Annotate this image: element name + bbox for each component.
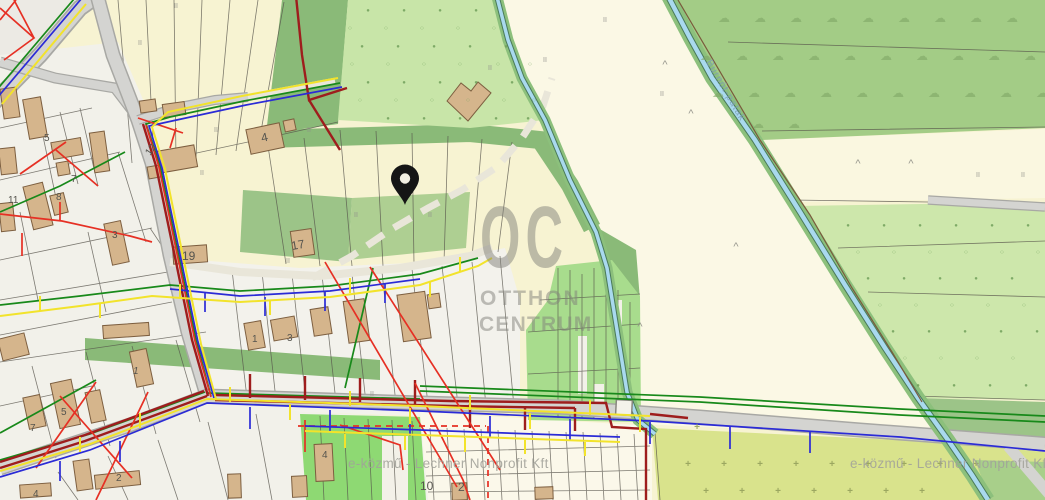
svg-text:●: ● [396, 44, 400, 50]
watermark-line3: CENTRUM [479, 313, 592, 336]
svg-text:+: + [775, 486, 781, 497]
svg-text:○: ○ [914, 302, 918, 309]
svg-text:☁: ☁ [752, 117, 764, 131]
svg-text:☁: ☁ [820, 86, 832, 100]
svg-text:II: II [1021, 172, 1025, 179]
svg-text:8: 8 [56, 192, 62, 203]
svg-text:II: II [138, 40, 142, 47]
svg-text:●: ● [510, 80, 514, 86]
svg-text:^: ^ [855, 158, 861, 170]
svg-text:●: ● [458, 116, 462, 122]
svg-text:○: ○ [420, 25, 424, 32]
svg-text:●: ● [963, 329, 967, 335]
svg-text:○: ○ [456, 25, 460, 32]
svg-text:☁: ☁ [718, 11, 730, 25]
svg-text:○: ○ [502, 97, 506, 104]
svg-text:●: ● [1024, 383, 1028, 389]
svg-text:○: ○ [358, 97, 362, 104]
svg-text:II: II [488, 65, 492, 72]
svg-text:☁: ☁ [880, 49, 892, 63]
svg-text:+: + [739, 486, 745, 497]
svg-text:II: II [428, 212, 432, 219]
svg-text:○: ○ [350, 61, 354, 68]
svg-text:☁: ☁ [964, 86, 976, 100]
svg-text:^: ^ [637, 321, 643, 333]
svg-text:○: ○ [496, 61, 500, 68]
svg-text:+: + [703, 486, 709, 497]
svg-text:●: ● [474, 8, 478, 14]
svg-text:+: + [829, 459, 835, 470]
svg-text:☁: ☁ [772, 49, 784, 63]
svg-text:☁: ☁ [1024, 49, 1036, 63]
culvert-marker [616, 400, 633, 416]
svg-text:●: ● [1026, 223, 1030, 229]
svg-text:○: ○ [892, 249, 896, 256]
svg-text:●: ● [422, 116, 426, 122]
svg-text:☁: ☁ [916, 49, 928, 63]
svg-text:4: 4 [322, 450, 328, 461]
svg-text:II: II [286, 258, 290, 265]
svg-text:○: ○ [1000, 249, 1004, 256]
svg-text:○: ○ [458, 61, 462, 68]
svg-text:○: ○ [422, 61, 426, 68]
svg-text:II: II [174, 3, 178, 10]
svg-text:●: ● [432, 44, 436, 50]
svg-text:1: 1 [252, 334, 258, 345]
svg-text:☁: ☁ [1000, 86, 1012, 100]
map-viewport: ●●●●●●●●●●●●●●●●●●●●●●●●●●●●●●●●●●●●●●●○… [0, 0, 1045, 500]
svg-text:○: ○ [986, 302, 990, 309]
svg-text:☁: ☁ [892, 86, 904, 100]
attribution-watermark-right: e-közmű - Lechner Nonprofit Kft [850, 456, 1045, 471]
svg-text:7: 7 [30, 423, 36, 434]
svg-text:☁: ☁ [748, 86, 760, 100]
svg-text:II: II [307, 127, 311, 134]
svg-text:○: ○ [430, 97, 434, 104]
svg-text:●: ● [952, 383, 956, 389]
svg-text:☁: ☁ [970, 11, 982, 25]
svg-text:●: ● [494, 116, 498, 122]
svg-text:●: ● [846, 223, 850, 229]
svg-text:II: II [660, 91, 664, 98]
svg-text:☁: ☁ [844, 49, 856, 63]
svg-text:^: ^ [733, 241, 739, 253]
svg-text:+: + [793, 459, 799, 470]
svg-text:○: ○ [964, 249, 968, 256]
watermark-line2: OTTHON [480, 287, 581, 310]
svg-text:7: 7 [71, 174, 77, 185]
svg-text:^: ^ [908, 158, 914, 170]
svg-text:☁: ☁ [788, 117, 800, 131]
svg-text:☁: ☁ [826, 11, 838, 25]
svg-text:●: ● [927, 329, 931, 335]
svg-text:3: 3 [112, 230, 118, 241]
svg-text:2: 2 [116, 473, 122, 484]
svg-text:☁: ☁ [736, 49, 748, 63]
svg-text:●: ● [938, 276, 942, 282]
svg-text:+: + [811, 486, 817, 497]
svg-text:II: II [214, 127, 218, 134]
svg-text:○: ○ [1011, 355, 1015, 362]
svg-text:○: ○ [492, 25, 496, 32]
svg-text:+: + [847, 486, 853, 497]
svg-text:●: ● [1035, 329, 1039, 335]
svg-text:○: ○ [384, 25, 388, 32]
svg-text:●: ● [366, 8, 370, 14]
svg-text:5: 5 [61, 407, 67, 418]
svg-text:●: ● [882, 223, 886, 229]
svg-text:○: ○ [348, 25, 352, 32]
svg-text:☁: ☁ [808, 49, 820, 63]
svg-text:●: ● [526, 116, 530, 122]
svg-text:+: + [721, 459, 727, 470]
svg-text:○: ○ [878, 302, 882, 309]
svg-text:●: ● [474, 80, 478, 86]
svg-text:●: ● [918, 223, 922, 229]
svg-text:☁: ☁ [784, 86, 796, 100]
svg-text:II: II [354, 212, 358, 219]
svg-text:○: ○ [528, 61, 532, 68]
svg-text:●: ● [999, 329, 1003, 335]
svg-text:●: ● [438, 8, 442, 14]
svg-text:○: ○ [394, 97, 398, 104]
map-canvas[interactable]: ●●●●●●●●●●●●●●●●●●●●●●●●●●●●●●●●●●●●●●●○… [0, 0, 1045, 500]
svg-text:●: ● [468, 44, 472, 50]
svg-text:☁: ☁ [856, 86, 868, 100]
svg-text:5: 5 [44, 133, 50, 144]
svg-text:●: ● [866, 276, 870, 282]
svg-text:^: ^ [662, 59, 668, 71]
svg-text:+: + [757, 459, 763, 470]
svg-text:○: ○ [975, 355, 979, 362]
svg-text:3: 3 [287, 333, 293, 344]
svg-text:●: ● [438, 80, 442, 86]
svg-text:2: 2 [458, 480, 465, 494]
svg-text:☁: ☁ [928, 86, 940, 100]
svg-text:○: ○ [903, 355, 907, 362]
svg-text:○: ○ [532, 97, 536, 104]
svg-text:+: + [685, 459, 691, 470]
svg-text:●: ● [402, 80, 406, 86]
svg-text:●: ● [990, 223, 994, 229]
svg-text:☁: ☁ [862, 11, 874, 25]
svg-text:○: ○ [939, 355, 943, 362]
svg-text:●: ● [902, 276, 906, 282]
svg-text:●: ● [891, 329, 895, 335]
svg-text:●: ● [504, 44, 508, 50]
svg-text:1: 1 [133, 366, 139, 377]
svg-text:●: ● [402, 8, 406, 14]
svg-text:+: + [883, 486, 889, 497]
svg-text:●: ● [360, 44, 364, 50]
svg-text:●: ● [916, 383, 920, 389]
watermark-oc: OC [480, 189, 568, 286]
svg-text:II: II [370, 391, 374, 398]
svg-text:II: II [200, 170, 204, 177]
attribution-watermark-left: e-közmű - Lechner Nonprofit Kft [348, 456, 549, 471]
svg-text:○: ○ [1036, 249, 1040, 256]
svg-text:○: ○ [950, 302, 954, 309]
svg-text:☁: ☁ [790, 11, 802, 25]
svg-text:●: ● [954, 223, 958, 229]
svg-text:●: ● [386, 116, 390, 122]
svg-text:+: + [919, 486, 925, 497]
svg-text:+: + [694, 422, 700, 433]
svg-text:☁: ☁ [988, 49, 1000, 63]
svg-text:II: II [603, 17, 607, 24]
svg-text:●: ● [974, 276, 978, 282]
svg-text:○: ○ [466, 97, 470, 104]
svg-text:☁: ☁ [952, 49, 964, 63]
svg-text:●: ● [988, 383, 992, 389]
svg-text:●: ● [366, 80, 370, 86]
svg-text:4: 4 [33, 489, 39, 500]
svg-text:^: ^ [688, 108, 694, 120]
svg-text:19: 19 [182, 249, 196, 263]
svg-text:○: ○ [386, 61, 390, 68]
svg-text:II: II [543, 57, 547, 64]
svg-text:II: II [976, 172, 980, 179]
svg-text:☁: ☁ [934, 11, 946, 25]
svg-text:☁: ☁ [754, 11, 766, 25]
svg-text:10: 10 [420, 479, 434, 493]
svg-text:17: 17 [290, 237, 306, 253]
svg-text:○: ○ [928, 249, 932, 256]
svg-text:☁: ☁ [1006, 11, 1018, 25]
svg-text:☁: ☁ [1036, 86, 1045, 100]
svg-text:11: 11 [8, 195, 19, 206]
svg-text:○: ○ [856, 249, 860, 256]
svg-text:○: ○ [1022, 302, 1026, 309]
svg-text:●: ● [1010, 276, 1014, 282]
svg-text:☁: ☁ [898, 11, 910, 25]
